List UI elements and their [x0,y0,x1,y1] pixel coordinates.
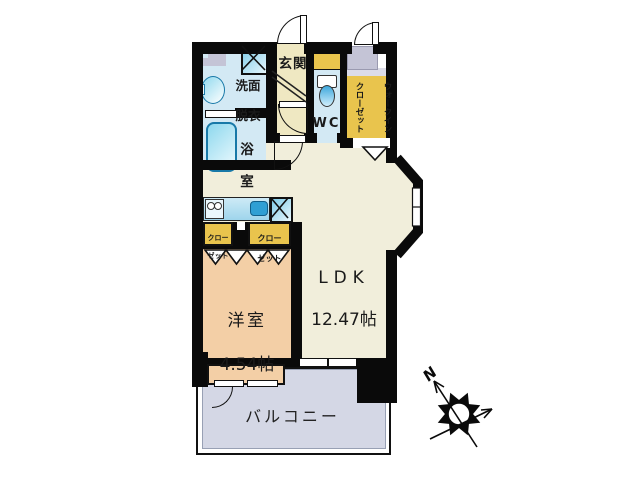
bathroom-label: 浴 室 [236,126,258,190]
wall [390,138,397,148]
entrance-door-leaf [300,15,307,44]
washroom-label: 洗面 脱衣 [229,63,267,123]
ldk-label: LDK 12.47帖 [300,247,388,331]
bay-window [386,158,421,255]
western-room-name: 洋室 [227,311,266,331]
compass-rose: N [419,363,492,447]
wall-block [357,358,397,403]
window [247,380,278,387]
wc-label: WC [306,116,347,131]
closet-left-line2: ゼット [208,252,229,260]
closet-door-gap [353,138,390,148]
western-room-area: 4.54帖 [220,355,275,375]
door-leaf [372,22,379,45]
stove-burner [214,202,222,210]
north-arrow [434,381,477,447]
washroom-label-line1: 洗面 [235,78,260,93]
north-label: N [419,363,441,385]
floor-plan: N 玄関 洗面 脱衣 浴 室 WC ウォークイン クローゼット クロー ゼット … [0,0,640,480]
bathroom-label-line2: 室 [240,174,254,190]
walk-in-closet-line2: クローゼット [354,82,364,133]
western-room-label: 洋室 4.54帖 [203,288,291,376]
closet-right-label: クロー ゼット [248,224,291,264]
closet-pillar-notch [237,222,245,230]
bathroom-label-line1: 浴 [240,142,254,158]
washroom-label-line2: 脱衣 [235,108,260,123]
kitchen-sink-icon [250,201,268,216]
hallway-door-leaf [279,101,307,108]
ldk-area: 12.47帖 [311,310,377,330]
refrigerator-space-icon [270,197,293,223]
toilet-bowl-icon [319,85,335,107]
entrance-label: 玄関 [270,52,316,72]
closet-left-line1: クロー [208,234,229,242]
closet-right-line2: ゼット [258,254,282,263]
closet-left-label: クロー ゼット [203,225,233,261]
wall [192,42,277,54]
window-mullion [327,358,329,367]
cross-arrow [430,409,492,439]
ldk-door-leaf [279,135,306,143]
wall [192,42,203,387]
walk-in-closet-line1: ウォークイン [382,82,392,133]
ldk-name: LDK [318,268,370,288]
walk-in-closet-label: ウォークイン クローゼット [352,75,408,139]
closet-right-line1: クロー [258,234,282,243]
window [214,380,244,387]
wall [337,133,347,143]
balcony-label: バルコニー [215,403,370,427]
